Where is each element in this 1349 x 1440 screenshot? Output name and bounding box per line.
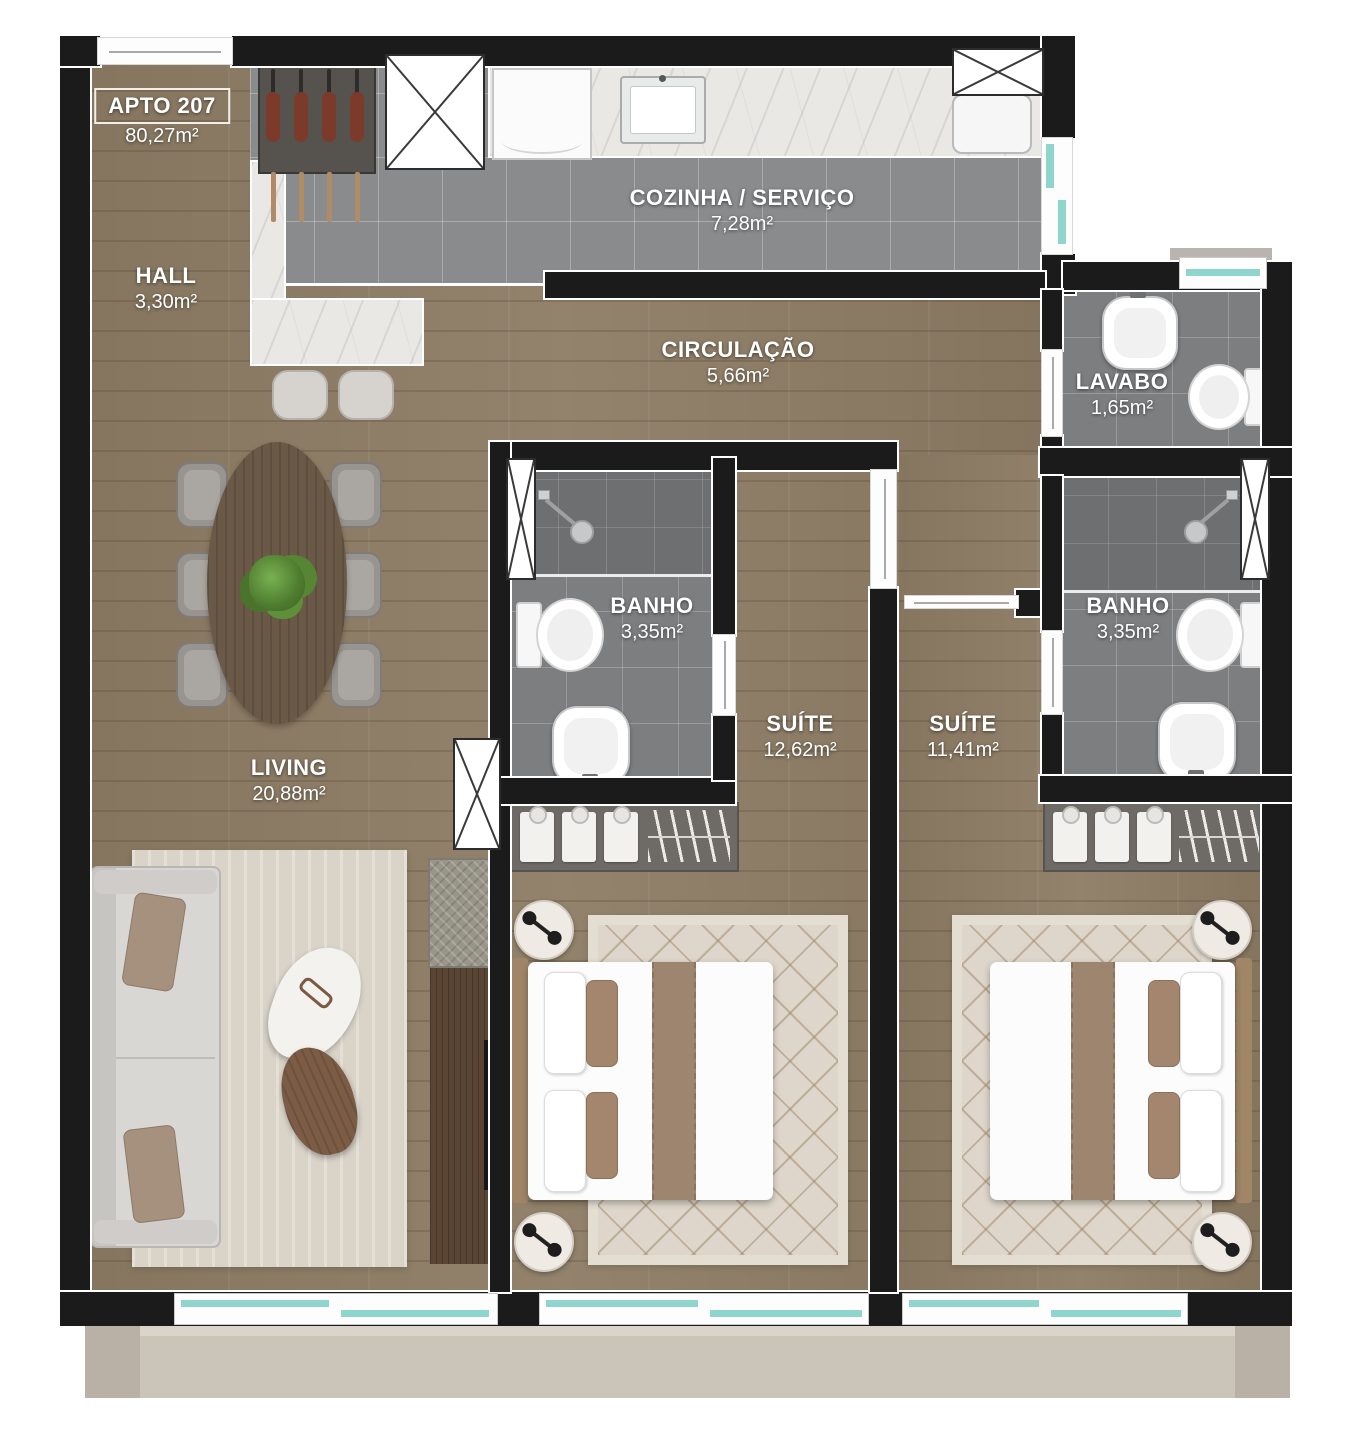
kitchen-counter-left: [252, 162, 284, 304]
wall-suites-top: [490, 442, 897, 470]
room-name: BANHO: [1086, 592, 1169, 620]
lavabo-sink-icon: [1102, 296, 1178, 370]
duct-shaft-icon: [453, 738, 501, 850]
wall-banho2-left: [1042, 714, 1062, 778]
folded-shirt-icon: [1137, 812, 1171, 862]
refrigerator: [492, 68, 592, 160]
suite1-window: [540, 1294, 868, 1324]
room-label-banho-suite2: BANHO 3,35m²: [1086, 592, 1169, 645]
unit-area: 80,27m²: [94, 124, 230, 149]
wall-banho2-bottom: [1040, 776, 1292, 802]
suite1-wardrobe: [510, 802, 739, 872]
duct-shaft-icon: [1240, 458, 1270, 580]
faucet-icon: [1130, 290, 1146, 298]
bed-headboard: [512, 958, 528, 1203]
bed-headboard: [1236, 958, 1252, 1203]
elevator-shaft-icon: [385, 54, 485, 170]
folded-shirt-icon: [520, 812, 554, 862]
shower-glass-banho1: [510, 574, 725, 577]
room-name: SUÍTE: [763, 710, 836, 738]
room-area: 12,62m²: [763, 738, 836, 763]
lavabo-window: [1180, 258, 1266, 288]
folded-shirt-icon: [562, 812, 596, 862]
glass-pane: [1058, 200, 1066, 244]
hanger-rod: [355, 172, 360, 222]
sink-basin: [630, 86, 696, 134]
room-name: LIVING: [251, 754, 327, 782]
room-label-banho-suite1: BANHO 3,35m²: [610, 592, 693, 645]
toilet-icon: [536, 598, 604, 672]
folded-shirt-icon: [604, 812, 638, 862]
bed-pillow: [1180, 972, 1222, 1074]
room-name: BANHO: [610, 592, 693, 620]
hanging-clothes-icon: [1179, 810, 1259, 862]
glass-pane: [710, 1310, 862, 1317]
shower-head-icon: [570, 520, 594, 544]
nightstand: [1192, 1212, 1252, 1272]
bed-accent-pillow: [1148, 1092, 1180, 1179]
lamp-icon: [1206, 917, 1234, 940]
room-area: 7,28m²: [630, 212, 855, 237]
suite2-sliding-door: [905, 596, 1018, 608]
balcony-slab: [85, 1326, 1290, 1398]
wall-left: [60, 36, 90, 1326]
room-name: COZINHA / SERVIÇO: [630, 184, 855, 212]
wall-kitchen-circulation: [545, 272, 1045, 298]
hanger-rod: [271, 172, 276, 222]
hanger-icon: [266, 92, 280, 142]
bed-accent-pillow: [586, 1092, 618, 1179]
kitchen-peninsula: [252, 300, 422, 364]
counter-stool: [338, 370, 394, 420]
wall-between-suites: [870, 588, 897, 1292]
room-label-suite2: SUÍTE 11,41m²: [927, 710, 999, 763]
hanger-icon: [350, 92, 364, 142]
hanger-icon: [294, 92, 308, 142]
room-area: 3,30m²: [135, 290, 197, 315]
hanger-rod: [299, 172, 304, 222]
glass-pane: [181, 1300, 329, 1307]
wall-top: [232, 36, 1045, 66]
room-name: HALL: [135, 262, 197, 290]
room-label-lavabo: LAVABO 1,65m²: [1076, 368, 1169, 421]
lamp-icon: [528, 917, 556, 940]
bed-pillow: [1180, 1090, 1222, 1192]
room-area: 5,66m²: [662, 364, 815, 389]
suite2-window: [903, 1294, 1187, 1324]
glass-pane: [909, 1300, 1039, 1307]
nightstand: [514, 900, 574, 960]
glass-pane: [1051, 1310, 1181, 1317]
toilet-icon: [1176, 598, 1244, 672]
service-tub: [952, 94, 1032, 154]
glass-pane: [1186, 269, 1260, 276]
service-glass-door: [1042, 138, 1072, 254]
shower-area-banho1: [510, 458, 725, 576]
room-name: CIRCULAÇÃO: [662, 336, 815, 364]
bed-accent-pillow: [1148, 980, 1180, 1067]
room-label-circulacao: CIRCULAÇÃO 5,66m²: [662, 336, 815, 389]
unit-label: APTO 207 80,27m²: [94, 88, 230, 149]
bed-runner: [1071, 962, 1115, 1200]
entry-door: [98, 38, 232, 64]
wall-banho2-left: [1042, 476, 1062, 631]
door-leaf: [109, 51, 222, 53]
kitchen-sink: [620, 76, 706, 144]
wall-kitchen-right: [1042, 36, 1075, 138]
faucet-icon: [659, 75, 666, 82]
room-area: 1,65m²: [1076, 396, 1169, 421]
door-leaf: [884, 479, 886, 578]
bed-pillow: [544, 1090, 586, 1192]
living-window: [175, 1294, 497, 1324]
room-area: 20,88m²: [251, 782, 327, 807]
hanger-rod: [327, 172, 332, 222]
plant-icon: [249, 555, 305, 611]
room-label-suite1: SUÍTE 12,62m²: [763, 710, 836, 763]
sofa-armrest: [94, 870, 217, 894]
bed-runner: [652, 962, 696, 1200]
wall-top: [60, 36, 100, 66]
suite2-wardrobe: [1043, 802, 1268, 872]
toilet-icon: [1188, 364, 1250, 430]
folded-shirt-icon: [1095, 812, 1129, 862]
balcony-edge: [85, 1326, 1290, 1336]
door-leaf: [724, 641, 726, 708]
room-name: SUÍTE: [927, 710, 999, 738]
room-name: LAVABO: [1076, 368, 1169, 396]
lamp-icon: [1206, 1229, 1234, 1252]
door-leaf: [1052, 357, 1054, 429]
room-label-hall: HALL 3,30m²: [135, 262, 197, 315]
balcony-column: [85, 1326, 140, 1398]
room-label-cozinha: COZINHA / SERVIÇO 7,28m²: [630, 184, 855, 237]
wall-lavabo-left: [1042, 290, 1062, 350]
bed-accent-pillow: [586, 980, 618, 1067]
nightstand: [514, 1212, 574, 1272]
hanging-clothes-icon: [648, 810, 730, 862]
tv-console: [430, 968, 488, 1264]
side-cabinet: [428, 858, 496, 968]
wall-banho1-right: [713, 715, 735, 780]
wall-banho1-bottom: [490, 778, 735, 804]
duct-shaft-icon: [506, 458, 536, 580]
wall-banho1-right: [713, 458, 735, 635]
unit-name: APTO 207: [94, 88, 230, 124]
door-leaf: [914, 602, 1009, 604]
nightstand: [1192, 900, 1252, 960]
room-area: 3,35m²: [1086, 620, 1169, 645]
lamp-icon: [528, 1229, 556, 1252]
kitchen-threshold: [250, 283, 547, 286]
room-area: 11,41m²: [927, 738, 999, 763]
lavabo-door: [1042, 350, 1062, 436]
floor-plan: APTO 207 80,27m² HALL 3,30m² COZINHA / S…: [0, 0, 1349, 1440]
balcony-column: [1235, 1326, 1290, 1398]
suite1-door: [871, 470, 896, 588]
room-area: 3,35m²: [610, 620, 693, 645]
bed-pillow: [544, 972, 586, 1074]
banho2-door: [1042, 631, 1062, 714]
duct-shaft-icon: [952, 48, 1044, 96]
shower-head-icon: [1184, 520, 1208, 544]
shower-valve-icon: [1226, 490, 1238, 500]
banho1-door: [713, 635, 735, 715]
folded-shirt-icon: [1053, 812, 1087, 862]
sofa-armrest: [94, 1220, 217, 1244]
room-label-living: LIVING 20,88m²: [251, 754, 327, 807]
hanger-icon: [322, 92, 336, 142]
sofa-back: [92, 868, 116, 1246]
glass-pane: [341, 1310, 489, 1317]
glass-pane: [546, 1300, 698, 1307]
door-leaf: [1052, 638, 1054, 708]
sofa-seam: [116, 1057, 215, 1059]
counter-stool: [272, 370, 328, 420]
glass-pane: [1046, 144, 1054, 188]
